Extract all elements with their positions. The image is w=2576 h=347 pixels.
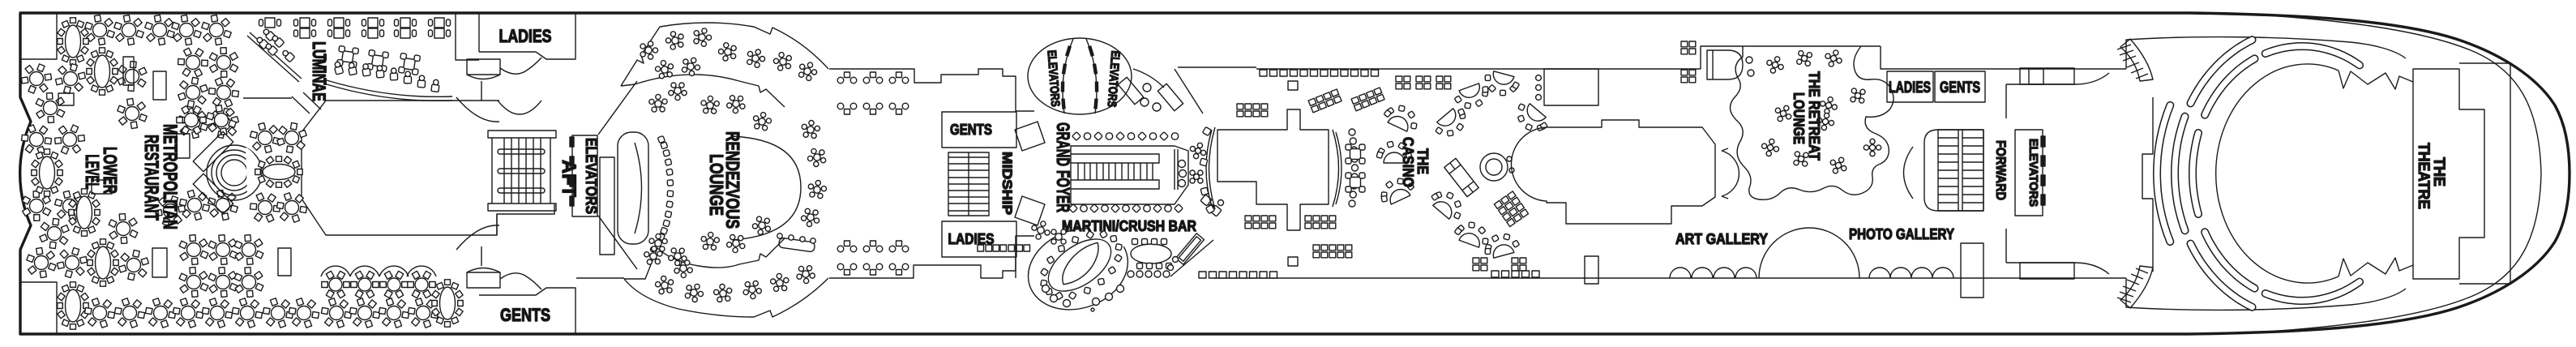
svg-text:FOYER: FOYER <box>1053 170 1073 212</box>
svg-text:THE: THE <box>1414 148 1431 174</box>
svg-text:LOUNGE: LOUNGE <box>1791 92 1807 144</box>
svg-text:THE: THE <box>2430 157 2447 186</box>
svg-text:LADIES: LADIES <box>1889 79 1931 96</box>
svg-text:ELEVATORS: ELEVATORS <box>2026 139 2040 207</box>
svg-text:LUMINAE: LUMINAE <box>309 41 329 101</box>
svg-text:THE RETREAT: THE RETREAT <box>1806 71 1822 161</box>
svg-text:MIDSHIP: MIDSHIP <box>999 152 1015 215</box>
svg-text:LEVEL: LEVEL <box>82 155 103 190</box>
svg-text:LADIES: LADIES <box>499 26 552 46</box>
svg-text:THEATRE: THEATRE <box>2415 143 2432 209</box>
svg-text:MARTINI/CRUSH BAR: MARTINI/CRUSH BAR <box>1062 218 1196 234</box>
svg-text:LOUNGE: LOUNGE <box>706 154 727 216</box>
svg-text:ELEVATORS: ELEVATORS <box>582 138 599 214</box>
svg-text:AFT: AFT <box>558 160 580 197</box>
svg-text:ART GALLERY: ART GALLERY <box>1675 231 1768 247</box>
svg-text:PHOTO GALLERY: PHOTO GALLERY <box>1849 226 1954 242</box>
svg-text:GENTS: GENTS <box>1940 79 1980 96</box>
svg-text:GENTS: GENTS <box>500 305 550 325</box>
svg-text:CASINO: CASINO <box>1400 137 1416 187</box>
svg-text:RESTAURANT: RESTAURANT <box>140 135 162 221</box>
svg-text:FORWARD: FORWARD <box>1993 140 2009 200</box>
svg-text:GRAND: GRAND <box>1053 122 1073 166</box>
svg-text:GENTS: GENTS <box>950 122 992 138</box>
